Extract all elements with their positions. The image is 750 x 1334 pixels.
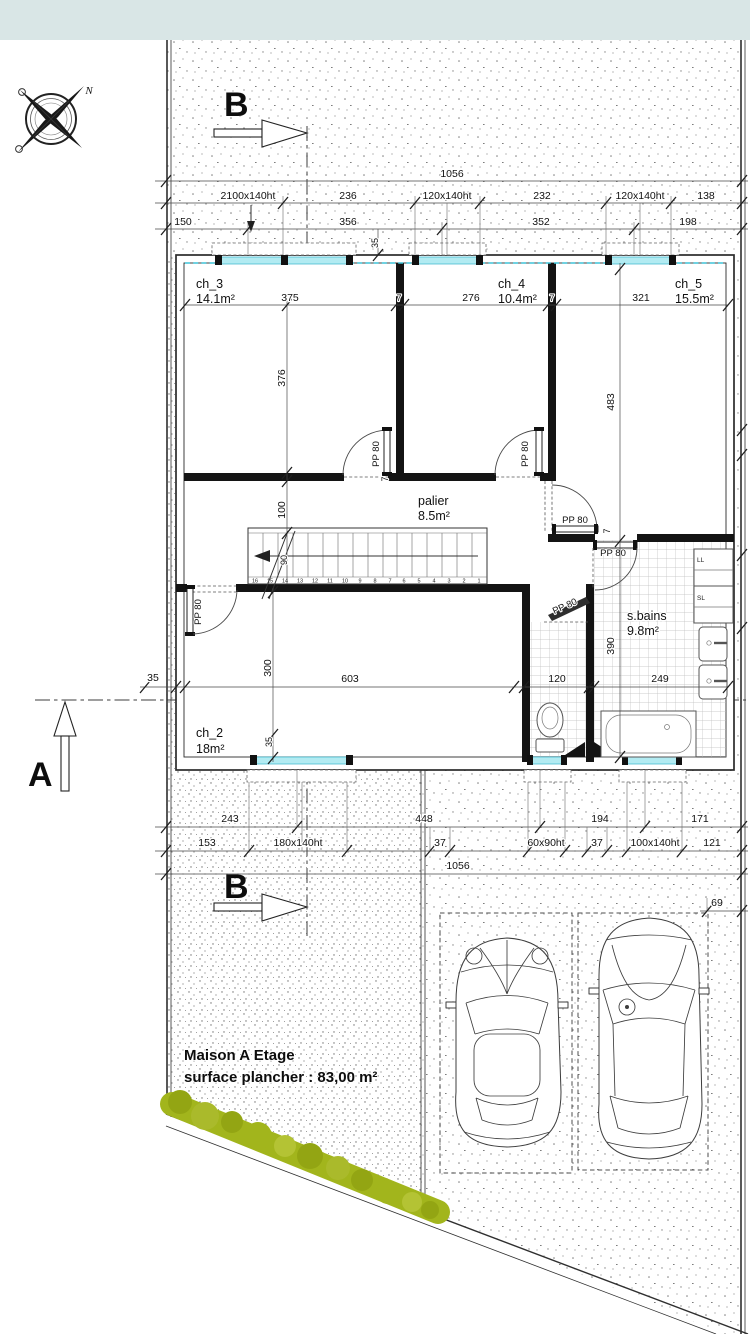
room-sbains-area: 9.8m² [627,624,659,638]
dim: 35 [264,737,274,747]
windows-top [185,243,726,265]
stair-number: 15 [267,579,273,585]
stair-number: 13 [297,579,303,585]
dim: 153 [198,837,216,849]
room-palier-area: 8.5m² [418,509,450,523]
room-ch2-name: ch_2 [196,726,223,740]
sink-1 [699,627,727,661]
stair-number: 1 [477,579,480,585]
dim: 35 [147,672,159,684]
door-ch3-label: PP 80 [371,441,382,467]
stair-number: 12 [312,579,318,585]
room-ch4-area: 10.4m² [498,292,537,306]
dim: 121 [703,837,721,849]
room-palier-name: palier [418,494,449,508]
room-ch2-area: 18m² [196,742,224,756]
stair-number: 8 [373,579,376,585]
car-1 [446,938,568,1147]
room-ch3-area: 14.1m² [196,292,235,306]
dim: 37 [434,837,446,849]
dim: 321 [632,292,650,304]
stair-number: 6 [402,579,405,585]
dim: 7 [380,476,390,481]
dim: 483 [605,393,617,411]
sink-2 [699,665,727,699]
dim: 603 [341,673,359,685]
dim: 390 [605,637,617,655]
washer-label: LL [697,557,705,564]
door-sbains-label: PP 80 [600,548,626,559]
door-corridor-label: PP 80 [562,515,588,526]
stair-number: 10 [342,579,348,585]
stair-number: 7 [388,579,391,585]
dim: 171 [691,813,709,825]
plan-title-line1: Maison A Etage [184,1047,295,1064]
section-b-top-label: B [224,86,249,124]
section-a-label: A [28,756,53,794]
door-ch4-label: PP 80 [520,441,531,467]
car-2 [589,918,709,1159]
stair-number: 3 [447,579,450,585]
dim: 300 [262,659,274,677]
dim: 100 [276,501,288,519]
stair-number: 11 [327,579,333,585]
room-ch4-name: ch_4 [498,277,525,291]
stair-number: 4 [432,579,435,585]
compass-north-label: N [84,85,93,97]
dim: 356 [339,216,357,228]
dim: 376 [276,369,288,387]
room-sbains-name: s.bains [627,609,667,623]
dim: 60x90ht [527,837,564,849]
dim-overall-bottom: 1056 [446,860,470,872]
dim-parking: 69 [711,897,723,909]
dim: 249 [651,673,669,685]
dim: 375 [281,292,299,304]
door-ch2-label: PP 80 [193,599,204,625]
dim: 37 [591,837,603,849]
room-ch3-name: ch_3 [196,277,223,291]
dim: 243 [221,813,239,825]
dim: 194 [591,813,609,825]
stair-number: 16 [252,579,258,585]
stair-number: 2 [462,579,465,585]
dim: 120x140ht [422,190,471,202]
dim: 90 [279,555,289,565]
room-ch5-area: 15.5m² [675,292,714,306]
washer-dryer: LL SL [694,549,733,623]
bathtub [601,711,696,757]
dim: 448 [415,813,433,825]
toilet [536,703,564,752]
dim: 35 [370,238,380,248]
plan-title-line2: surface plancher : 83,00 m² [184,1069,377,1086]
dim: 232 [533,190,551,202]
dim: 276 [462,292,480,304]
dim: 2100x140ht [221,190,276,202]
dim: 138 [697,190,715,202]
dim: 352 [532,216,550,228]
dim: 236 [339,190,357,202]
stair-number: 5 [417,579,420,585]
dim-overall-top: 1056 [440,168,464,180]
floorplan-page: N B B A [0,0,750,1334]
dim: 198 [679,216,697,228]
top-band [0,0,750,40]
stair-number: 9 [358,579,361,585]
room-ch5-name: ch_5 [675,277,702,291]
dim: 150 [174,216,192,228]
dim: 7 [602,528,612,533]
dim: 180x140ht [273,837,322,849]
dryer-label: SL [697,595,705,602]
dim: 7 [549,293,554,303]
wc-tiles [530,622,586,757]
dim: 100x140ht [630,837,679,849]
dim: 7 [396,293,401,303]
dim: 120 [548,673,566,685]
building: PP 80 PP 80 PP 80 PP 80 PP 80 PP 80 [176,243,734,782]
dim: 120x140ht [615,190,664,202]
floorplan-drawing: N B B A [0,0,750,1334]
